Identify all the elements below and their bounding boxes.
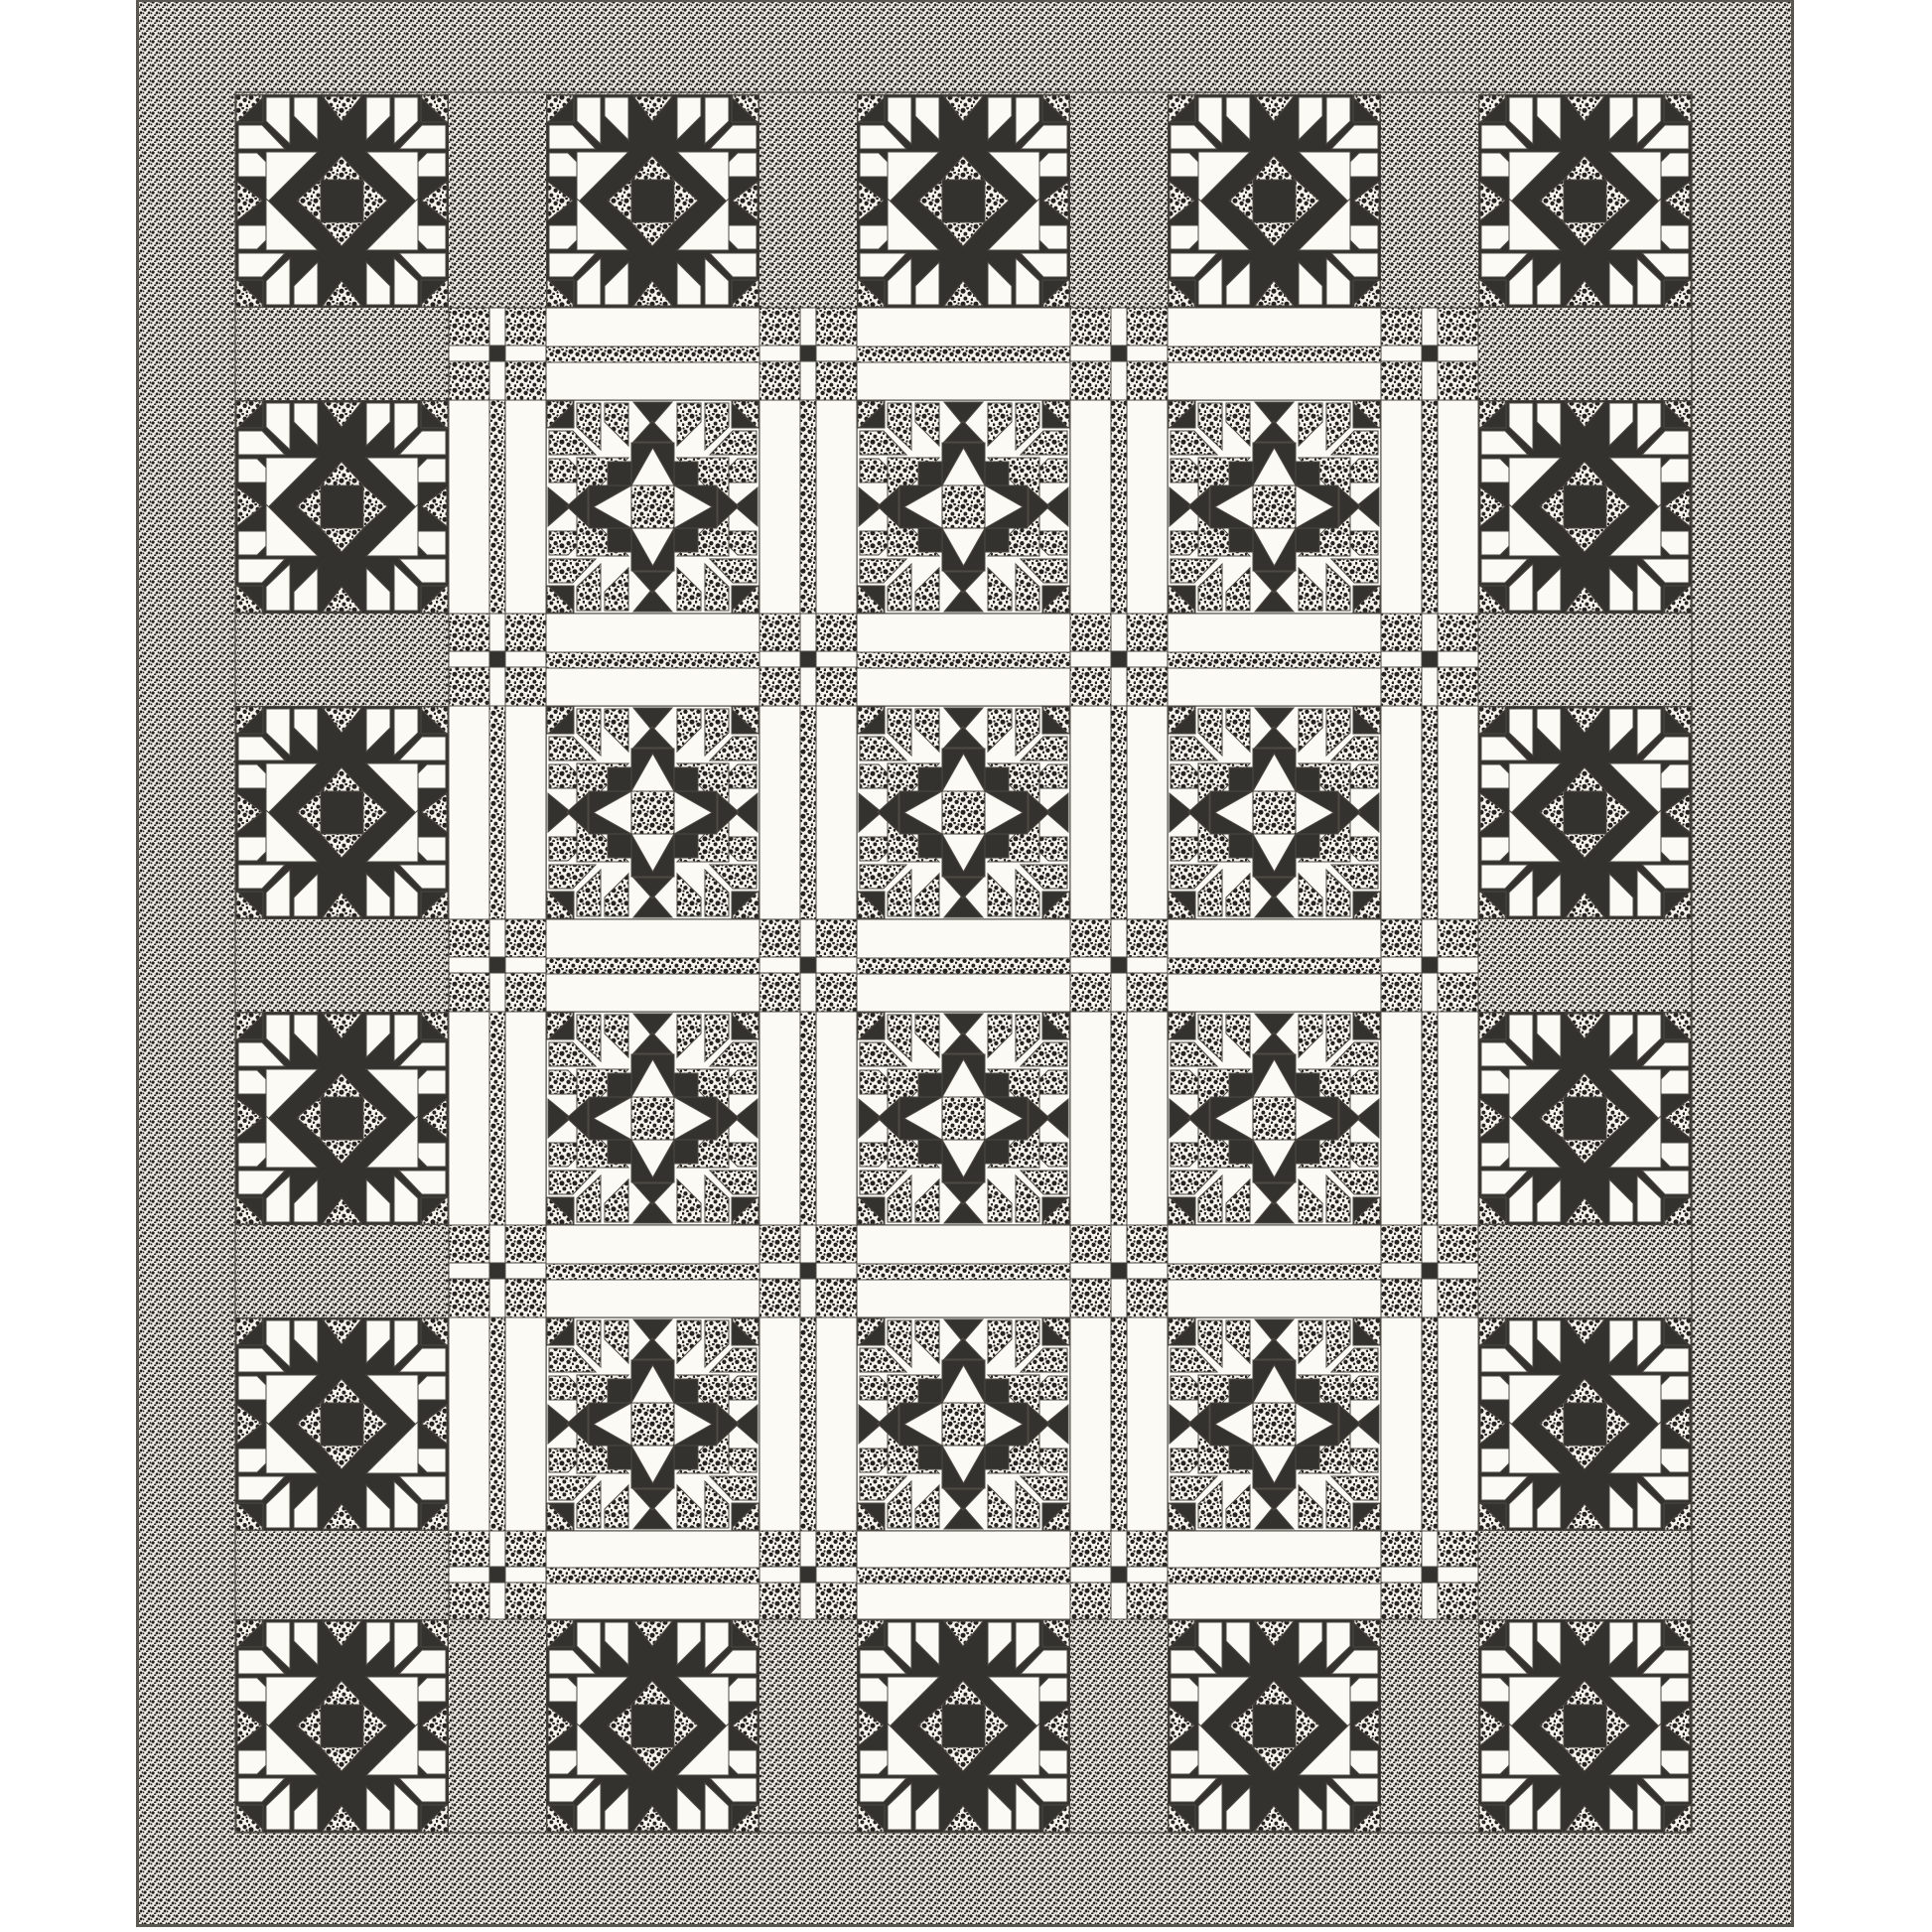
quilt-block-goose-tracks-dark xyxy=(546,1619,759,1833)
quilt-block-goose-tracks-dark xyxy=(1478,400,1692,614)
quilt-block-goose-tracks-dark xyxy=(546,94,759,308)
quilt-block-goose-tracks-dark xyxy=(1478,94,1692,308)
quilt-block-goose-tracks-light xyxy=(546,706,759,919)
quilt-block-goose-tracks-dark xyxy=(1478,1619,1692,1833)
quilt-block-goose-tracks-light xyxy=(1168,1012,1381,1225)
quilt-block-goose-tracks-light xyxy=(546,1012,759,1225)
quilt-block-goose-tracks-dark xyxy=(235,1619,449,1833)
quilt-block-goose-tracks-light xyxy=(546,400,759,614)
quilt-pattern-image xyxy=(0,0,1932,1932)
quilt-block-goose-tracks-light xyxy=(1168,706,1381,919)
quilt-block-goose-tracks-dark xyxy=(235,706,449,919)
quilt-block-goose-tracks-light xyxy=(1168,400,1381,614)
quilt-block-goose-tracks-dark xyxy=(1168,1619,1381,1833)
page-background xyxy=(0,0,1932,1932)
quilt-block-goose-tracks-light xyxy=(546,1317,759,1531)
quilt-block-goose-tracks-light xyxy=(857,706,1070,919)
quilt-block-goose-tracks-dark xyxy=(857,1619,1070,1833)
quilt-block-goose-tracks-dark xyxy=(235,1012,449,1225)
quilt-block-goose-tracks-light xyxy=(857,400,1070,614)
quilt-block-goose-tracks-dark xyxy=(235,1317,449,1531)
quilt-pattern-figure xyxy=(0,0,1932,1932)
quilt-block-goose-tracks-dark xyxy=(1478,1012,1692,1225)
quilt-block-goose-tracks-light xyxy=(857,1317,1070,1531)
quilt-block-goose-tracks-dark xyxy=(1168,94,1381,308)
quilt-block-goose-tracks-light xyxy=(1168,1317,1381,1531)
quilt-block-goose-tracks-dark xyxy=(235,94,449,308)
quilt-block-goose-tracks-dark xyxy=(857,94,1070,308)
quilt-block-goose-tracks-dark xyxy=(1478,706,1692,919)
quilt-block-goose-tracks-dark xyxy=(235,400,449,614)
quilt-block-goose-tracks-dark xyxy=(1478,1317,1692,1531)
quilt-block-goose-tracks-light xyxy=(857,1012,1070,1225)
